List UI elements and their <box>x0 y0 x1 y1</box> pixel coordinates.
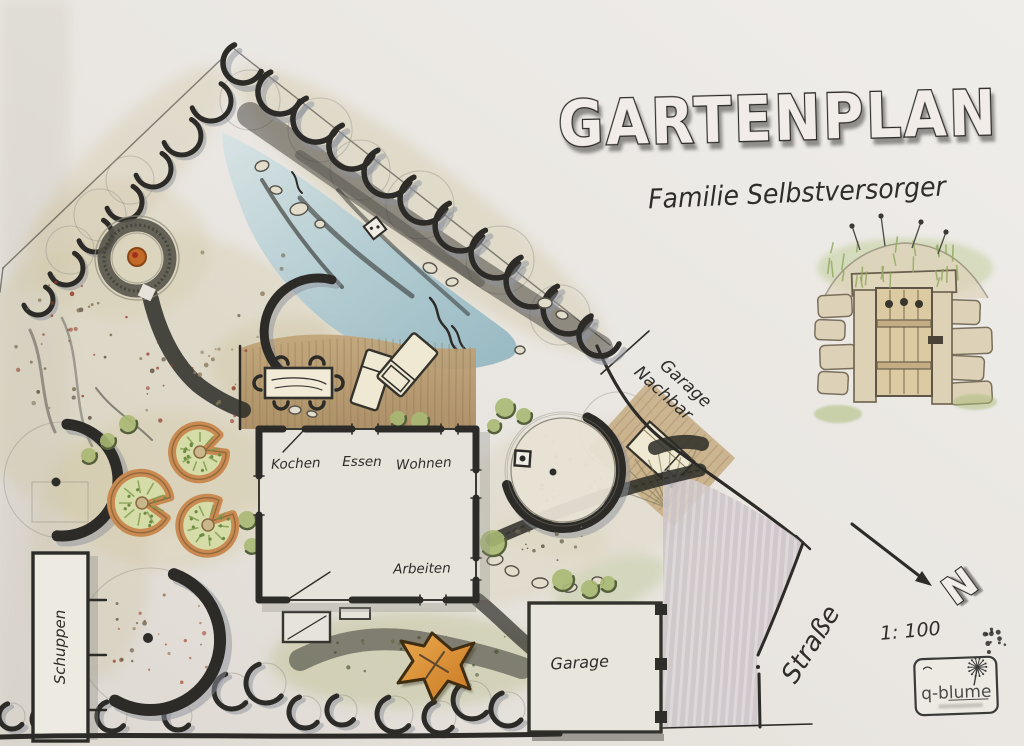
fire-pit-circle <box>95 216 179 301</box>
shed: Schuppen <box>33 553 106 741</box>
garden-plan-sheet: Kochen Essen Wohnen Arbeiten <box>0 0 1024 746</box>
wooden-door <box>876 288 943 396</box>
garage: Garage <box>529 603 667 741</box>
room-label-kochen: Kochen <box>271 455 321 473</box>
logo-text: q-blume <box>921 682 992 704</box>
room-label-wohnen: Wohnen <box>396 455 452 474</box>
house: Kochen Essen Wohnen Arbeiten <box>254 424 490 642</box>
grill-icon <box>515 450 531 466</box>
door-latch <box>928 336 943 344</box>
hedge-at-driveway <box>655 442 702 448</box>
room-label-essen: Essen <box>342 454 381 470</box>
plan-drawing: Kochen Essen Wohnen Arbeiten <box>0 0 1024 746</box>
page-title: GARTENPLAN <box>557 76 999 160</box>
room-label-arbeiten: Arbeiten <box>392 560 451 577</box>
garage-label: Garage <box>550 651 610 673</box>
bottom-boundary-line <box>0 734 560 737</box>
shed-label: Schuppen <box>51 610 69 685</box>
